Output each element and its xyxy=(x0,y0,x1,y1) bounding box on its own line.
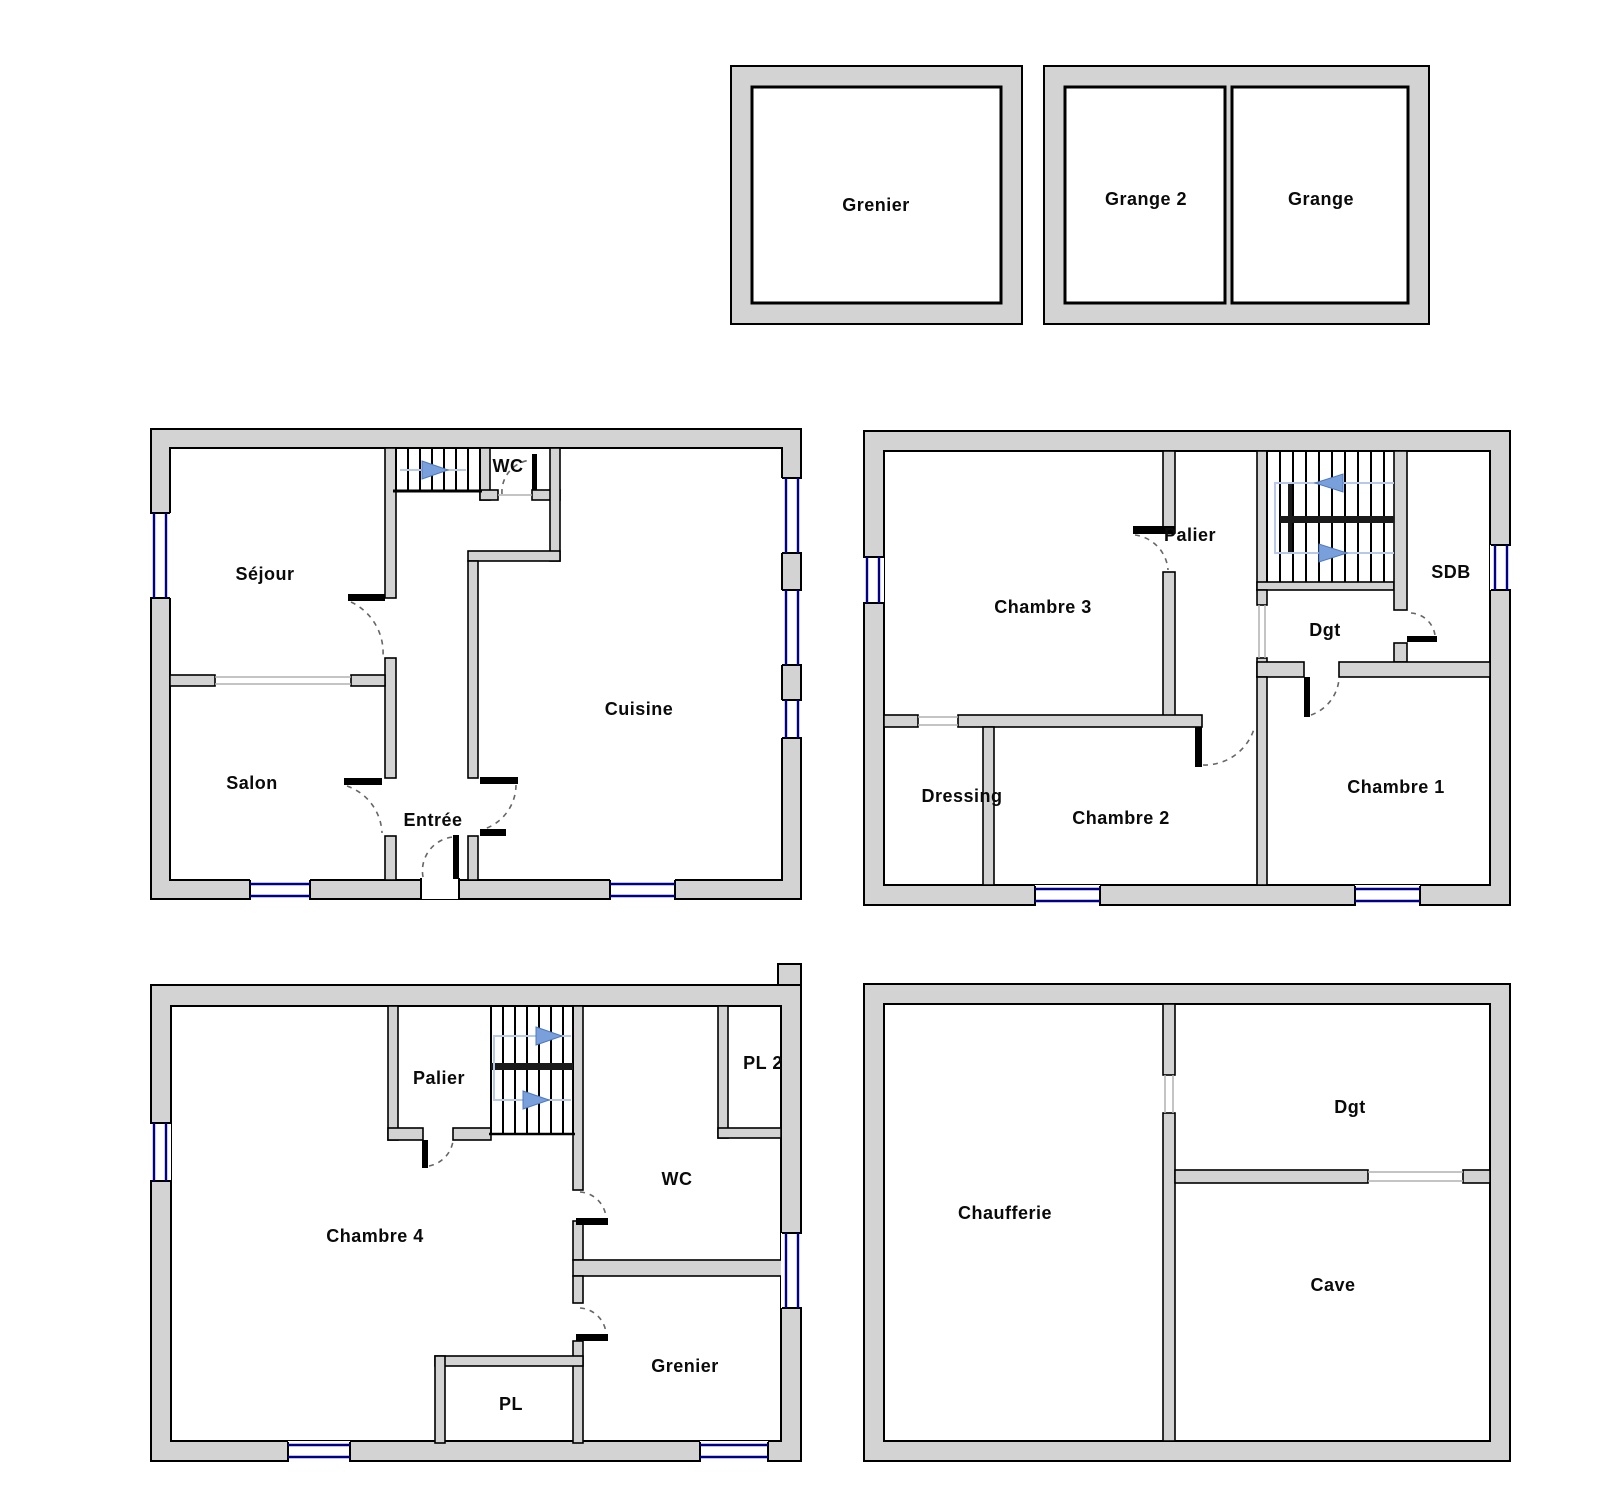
floor-plan-sheet: Grenier Grange 2 Grange xyxy=(0,0,1600,1495)
room-label-cave: Cave xyxy=(1310,1275,1355,1295)
room-label-grange: Grange xyxy=(1288,189,1354,209)
room-label-chambre2: Chambre 2 xyxy=(1072,808,1170,828)
room-label-wc: WC xyxy=(662,1169,693,1189)
second-floor-plan: Palier Chambre 4 PL 2 WC Grenier PL xyxy=(150,963,802,1462)
room-label-grange2: Grange 2 xyxy=(1105,189,1187,209)
attic-outbuilding-plan: Grenier xyxy=(730,65,1023,325)
outer-walls xyxy=(151,964,801,1461)
room-label-grenier: Grenier xyxy=(842,195,910,215)
room-label-wc: WC xyxy=(493,456,524,476)
room-label-pl2: PL 2 xyxy=(743,1053,783,1073)
room-label-pl: PL xyxy=(499,1394,523,1414)
first-floor-plan: Chambre 3 Palier SDB Dgt Dressing Chambr… xyxy=(863,430,1511,906)
room-label-chambre3: Chambre 3 xyxy=(994,597,1092,617)
room-label-palier: Palier xyxy=(1164,525,1216,545)
room-label-dgt: Dgt xyxy=(1309,620,1341,640)
ground-floor-plan: Séjour Salon Cuisine Entrée WC xyxy=(150,428,802,900)
walls xyxy=(1044,66,1429,324)
room-label-salon: Salon xyxy=(226,773,278,793)
room-label-dressing: Dressing xyxy=(921,786,1002,806)
basement-plan: Chaufferie Dgt Cave xyxy=(863,963,1511,1462)
room-label-dgt: Dgt xyxy=(1334,1097,1366,1117)
room-label-grenier: Grenier xyxy=(651,1356,719,1376)
room-label-palier: Palier xyxy=(413,1068,465,1088)
room-label-chaufferie: Chaufferie xyxy=(958,1203,1052,1223)
room-label-chambre1: Chambre 1 xyxy=(1347,777,1445,797)
room-label-entree: Entrée xyxy=(403,810,462,830)
room-label-cuisine: Cuisine xyxy=(605,699,674,719)
room-label-sdb: SDB xyxy=(1431,562,1471,582)
room-label-chambre4: Chambre 4 xyxy=(326,1226,424,1246)
room-label-sejour: Séjour xyxy=(235,564,294,584)
barn-outbuilding-plan: Grange 2 Grange xyxy=(1043,65,1430,325)
